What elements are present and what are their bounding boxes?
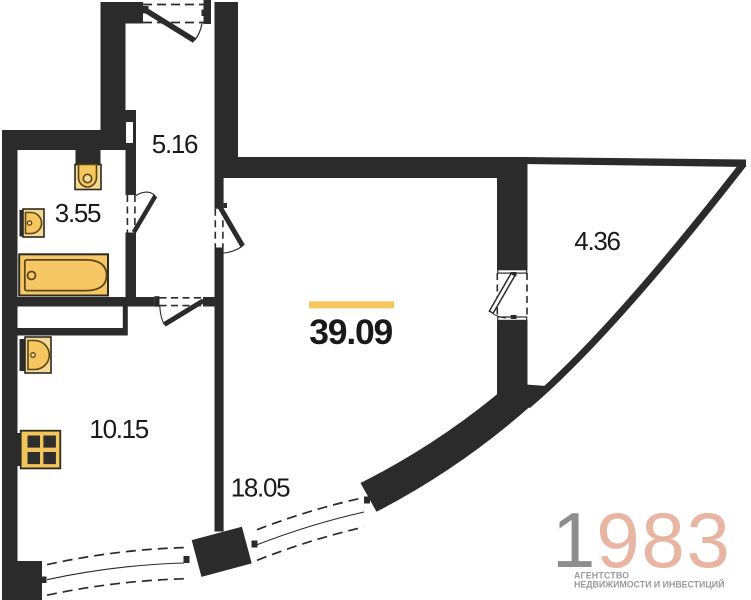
svg-text:10.15: 10.15 — [89, 414, 148, 444]
svg-text:4.36: 4.36 — [574, 226, 620, 256]
svg-text:НЕДВИЖИМОСТИ И ИНВЕСТИЦИЙ: НЕДВИЖИМОСТИ И ИНВЕСТИЦИЙ — [574, 579, 724, 590]
svg-text:5.16: 5.16 — [152, 129, 198, 159]
svg-text:18.05: 18.05 — [231, 473, 290, 503]
svg-text:3.55: 3.55 — [55, 198, 101, 228]
svg-text:39.09: 39.09 — [309, 312, 392, 352]
